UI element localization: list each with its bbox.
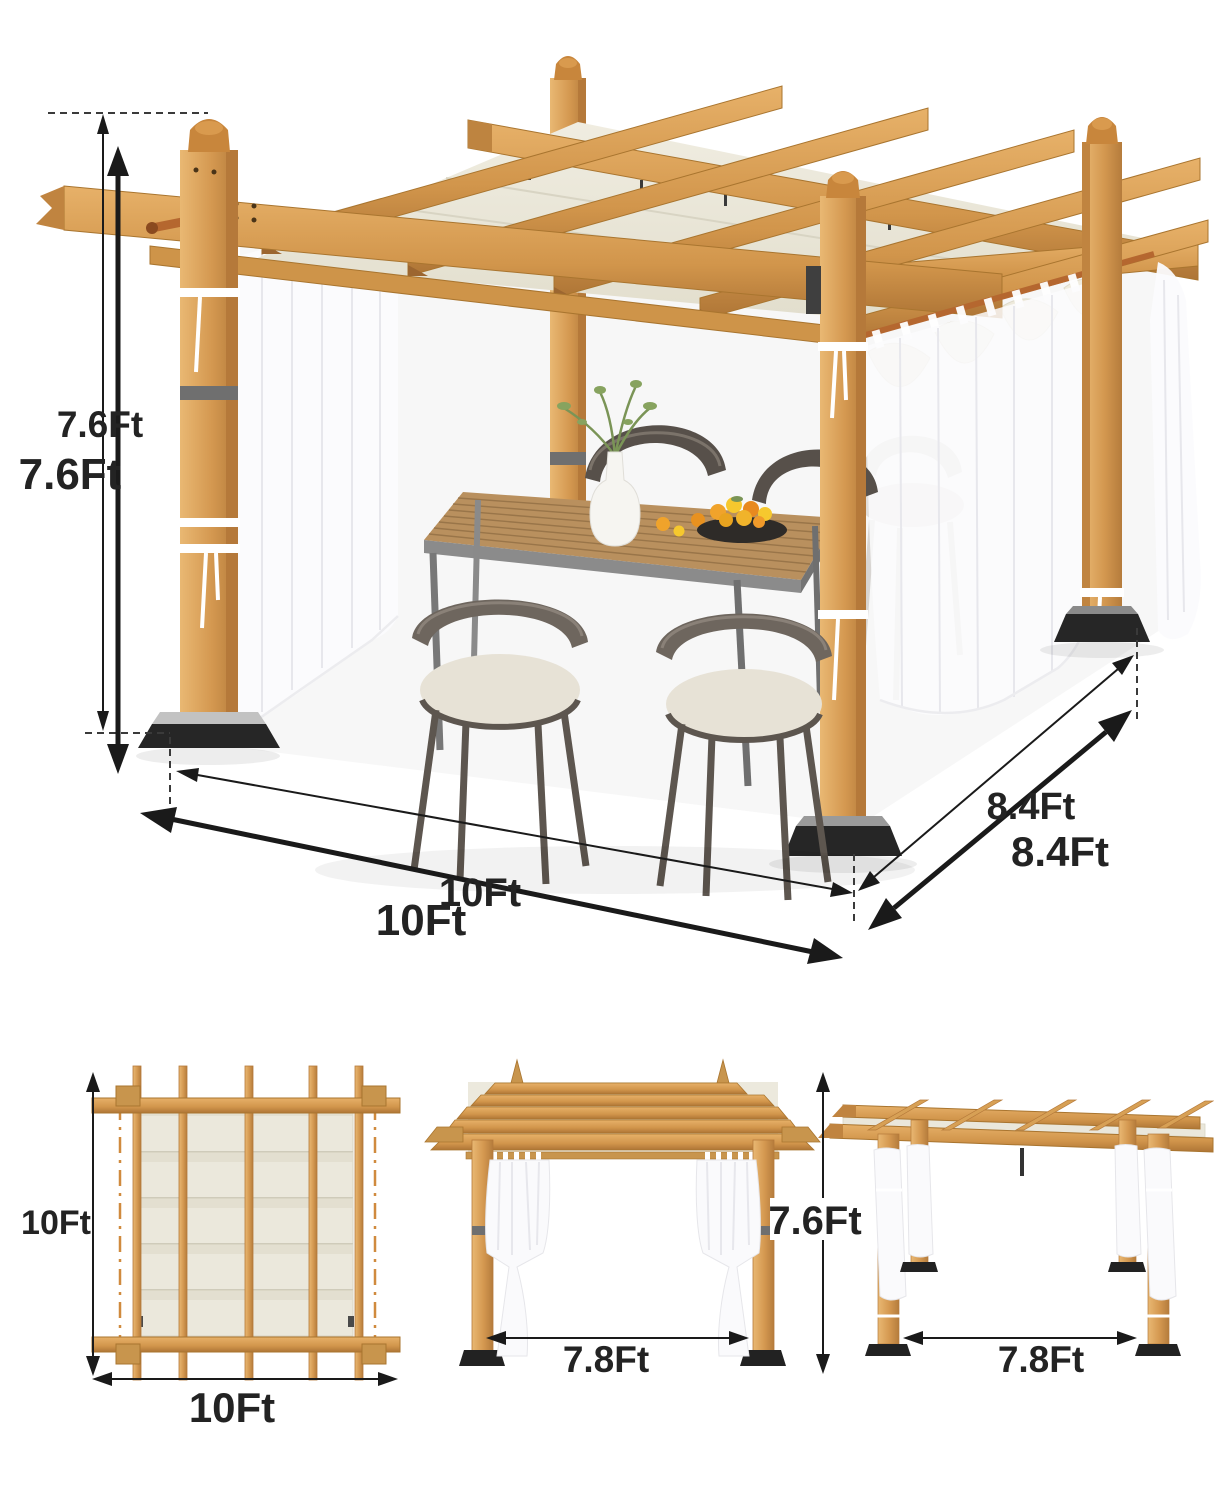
depth-label-large: 8.4Ft bbox=[1011, 828, 1109, 875]
main-pergola-scene bbox=[36, 56, 1208, 900]
top-view-side-label: 10Ft bbox=[21, 1204, 91, 1242]
side-view-curtains bbox=[874, 1145, 1176, 1301]
post-shadow-back bbox=[1040, 642, 1164, 658]
height-label-large: 7.6Ft bbox=[19, 450, 122, 499]
front-view: 7.8Ft bbox=[425, 1060, 820, 1380]
pergola-dimension-diagram: 7.6Ft 7.6Ft 10Ft 10Ft 8.4Ft 8.4Ft bbox=[0, 0, 1214, 1494]
depth-label-small: 8.4Ft bbox=[987, 786, 1076, 828]
height-label-small: 7.6Ft bbox=[57, 404, 143, 445]
post-shadow-right bbox=[769, 855, 917, 873]
front-view-width-label: 7.8Ft bbox=[563, 1339, 649, 1380]
side-view-depth-label: 7.8Ft bbox=[998, 1339, 1084, 1380]
side-view: 7.6Ft 7.8Ft bbox=[768, 1072, 1213, 1380]
top-view: 10Ft 10Ft bbox=[21, 1066, 400, 1431]
front-view-curtains bbox=[486, 1160, 761, 1356]
post-shadow-left bbox=[136, 747, 280, 765]
side-view-height-label: 7.6Ft bbox=[768, 1199, 861, 1243]
diagram-svg: 7.6Ft 7.6Ft 10Ft 10Ft 8.4Ft 8.4Ft bbox=[0, 0, 1214, 1494]
top-view-front-label: 10Ft bbox=[189, 1384, 275, 1431]
width-label-large: 10Ft bbox=[376, 896, 467, 945]
